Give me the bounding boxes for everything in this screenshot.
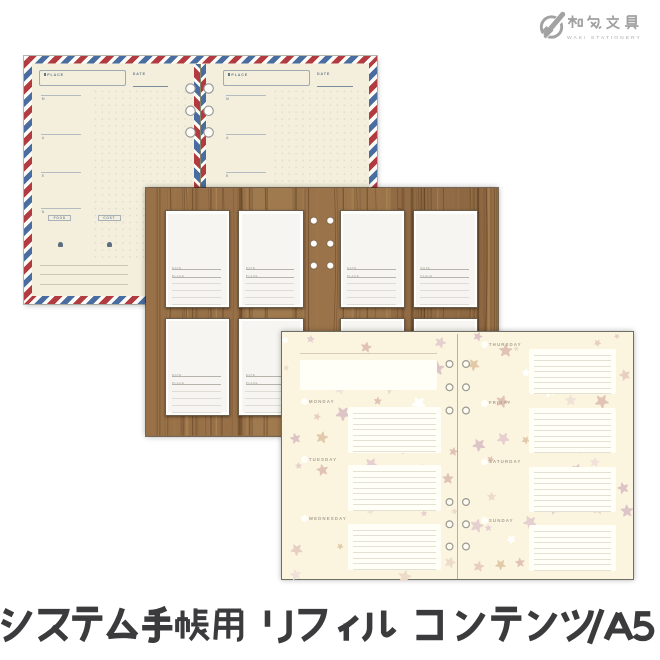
svg-text:WAKI STATIONERY: WAKI STATIONERY bbox=[567, 35, 642, 41]
